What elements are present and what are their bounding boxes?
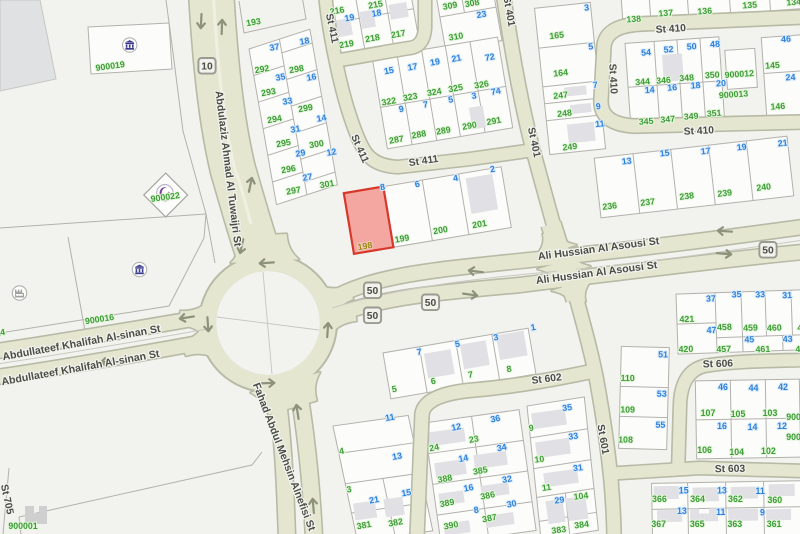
svg-text:53: 53 [657,389,667,399]
svg-text:136: 136 [697,6,712,17]
svg-text:367: 367 [651,519,666,529]
svg-text:9000: 9000 [786,412,800,422]
svg-text:46: 46 [781,34,792,45]
svg-text:19: 19 [429,56,440,68]
svg-text:146: 146 [770,101,785,112]
svg-text:13: 13 [677,506,687,516]
svg-text:110: 110 [620,373,634,383]
svg-text:31: 31 [572,462,583,473]
svg-text:50: 50 [425,298,437,309]
svg-text:457: 457 [716,344,731,355]
svg-text:365: 365 [690,519,705,529]
svg-text:35: 35 [275,71,286,83]
svg-text:32: 32 [501,473,513,485]
svg-text:55: 55 [655,420,665,430]
svg-text:33: 33 [568,431,579,442]
svg-text:13: 13 [391,450,402,462]
svg-text:13: 13 [621,155,632,166]
svg-text:106: 106 [697,445,712,455]
svg-text:12: 12 [326,146,337,158]
svg-text:361: 361 [767,519,782,529]
svg-text:51: 51 [658,349,668,359]
svg-text:18: 18 [299,35,310,47]
svg-text:345: 345 [638,116,653,127]
svg-text:48: 48 [710,39,721,50]
svg-text:349: 349 [683,111,698,122]
svg-text:236: 236 [602,200,618,212]
svg-text:17: 17 [407,61,418,73]
svg-text:103: 103 [763,408,778,418]
svg-text:347: 347 [660,114,675,125]
svg-text:21: 21 [368,494,379,506]
svg-text:37: 37 [706,293,716,303]
svg-text:460: 460 [767,322,782,333]
svg-text:50: 50 [367,311,379,322]
svg-text:42: 42 [778,382,788,392]
svg-text:135: 135 [742,0,757,11]
svg-text:14: 14 [458,452,470,464]
svg-text:36: 36 [490,413,502,425]
svg-text:19: 19 [736,141,747,152]
svg-text:50: 50 [367,286,379,297]
svg-text:351: 351 [706,108,721,119]
svg-text:11: 11 [756,486,765,496]
svg-text:33: 33 [282,95,293,107]
svg-text:11: 11 [541,482,552,493]
svg-text:35: 35 [732,289,742,299]
svg-text:16: 16 [306,71,317,83]
svg-text:107: 107 [701,408,716,418]
svg-text:23: 23 [468,433,480,445]
svg-text:164: 164 [553,67,569,78]
svg-text:138: 138 [626,14,641,25]
svg-text:47: 47 [706,325,716,335]
svg-text:13: 13 [717,485,727,495]
svg-text:50: 50 [762,246,774,257]
svg-text:29: 29 [554,494,565,505]
svg-text:50: 50 [686,41,697,52]
svg-text:30: 30 [506,498,518,510]
svg-text:900012: 900012 [724,68,754,80]
svg-text:15: 15 [659,147,670,158]
svg-text:240: 240 [756,181,772,193]
svg-text:12: 12 [777,421,787,431]
svg-text:St 410: St 410 [655,23,686,36]
svg-text:383: 383 [551,524,567,534]
svg-text:900013: 900013 [719,88,749,100]
svg-text:362: 362 [728,494,743,504]
svg-text:239: 239 [717,187,733,199]
svg-text:16: 16 [463,482,475,494]
svg-text:360: 360 [767,495,782,505]
svg-text:31: 31 [782,290,792,300]
svg-text:10: 10 [201,62,213,73]
svg-text:238: 238 [679,190,695,202]
svg-text:11: 11 [595,118,605,129]
svg-text:9: 9 [760,507,765,517]
svg-text:27: 27 [302,171,313,183]
svg-text:14: 14 [316,112,327,124]
svg-text:165: 165 [549,30,565,41]
svg-text:108: 108 [618,434,633,444]
svg-text:420: 420 [678,344,693,355]
svg-text:104: 104 [729,447,744,457]
svg-text:237: 237 [640,196,656,208]
svg-text:52: 52 [663,44,674,55]
svg-text:72: 72 [484,51,495,63]
svg-text:18: 18 [690,80,701,91]
svg-text:33: 33 [755,289,765,299]
svg-text:21: 21 [777,137,788,148]
svg-text:34: 34 [496,442,508,454]
svg-text:366: 366 [652,494,667,504]
svg-text:461: 461 [755,344,770,355]
svg-text:St 603: St 603 [715,464,746,476]
svg-text:15: 15 [401,487,412,499]
svg-text:37: 37 [269,41,280,53]
svg-text:31: 31 [290,123,301,135]
svg-text:19: 19 [344,12,355,24]
svg-text:44: 44 [749,383,759,393]
svg-text:9000: 9000 [786,432,800,442]
svg-text:137: 137 [658,8,673,19]
svg-text:45: 45 [744,334,754,344]
svg-text:14: 14 [748,422,758,432]
svg-text:145: 145 [765,60,780,71]
svg-text:11: 11 [716,507,725,517]
svg-text:384: 384 [574,519,590,531]
svg-text:17: 17 [700,145,711,156]
svg-text:363: 363 [727,519,742,529]
svg-text:35: 35 [562,402,573,413]
svg-text:24: 24 [785,72,796,83]
svg-text:St 410: St 410 [683,125,714,138]
svg-text:15: 15 [679,485,689,495]
svg-text:St 410: St 410 [606,63,619,94]
svg-text:74: 74 [490,85,501,97]
svg-text:29: 29 [295,147,306,159]
svg-text:20: 20 [716,78,727,89]
svg-text:105: 105 [731,409,746,419]
svg-text:248: 248 [557,107,573,118]
svg-text:134: 134 [786,0,800,8]
svg-text:104: 104 [573,490,589,502]
svg-text:459: 459 [743,322,758,333]
svg-text:23: 23 [476,9,487,21]
svg-text:15: 15 [383,65,394,77]
svg-text:10: 10 [534,454,545,465]
svg-text:St 606: St 606 [703,358,734,370]
svg-text:249: 249 [562,141,578,152]
svg-text:458: 458 [717,322,732,333]
svg-text:21: 21 [451,52,462,64]
svg-text:46: 46 [718,382,728,392]
svg-text:109: 109 [620,404,635,414]
svg-text:421: 421 [679,314,694,325]
svg-text:12: 12 [450,421,462,433]
svg-text:900001: 900001 [8,521,37,531]
svg-text:364: 364 [690,494,705,504]
svg-text:54: 54 [641,47,652,58]
svg-text:43: 43 [783,334,793,344]
svg-text:247: 247 [553,89,569,100]
svg-text:11: 11 [384,412,395,423]
svg-text:16: 16 [667,82,678,93]
svg-text:4: 4 [795,344,800,354]
svg-text:18: 18 [371,7,382,19]
svg-text:16: 16 [717,421,727,431]
svg-text:14: 14 [644,84,655,95]
svg-text:102: 102 [761,446,776,456]
svg-text:24: 24 [428,442,440,454]
